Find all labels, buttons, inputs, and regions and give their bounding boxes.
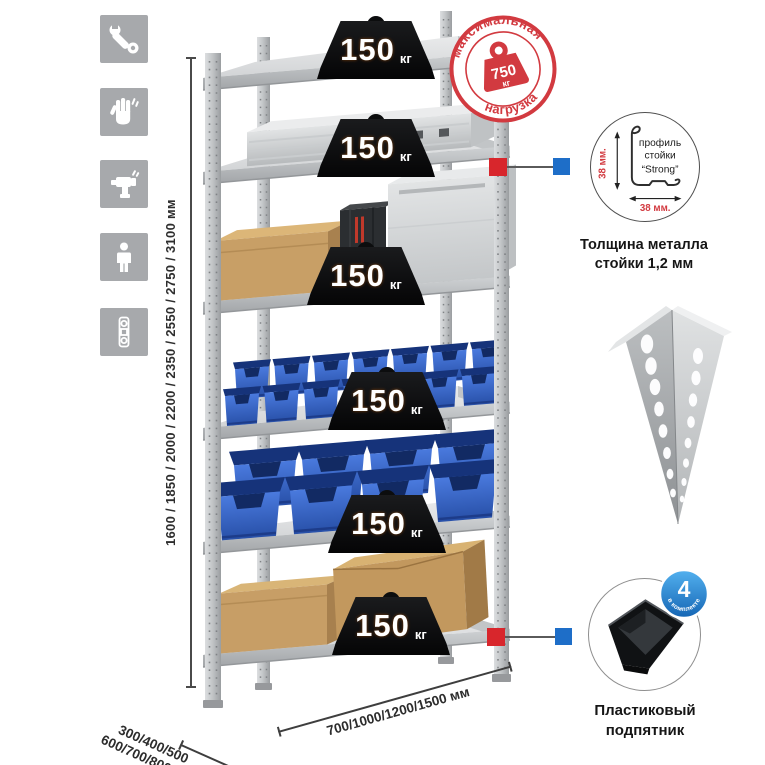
shelf-load-badge: 150кг (317, 114, 435, 177)
height-dimension-line (190, 57, 192, 688)
sidebar-icon-tile (100, 308, 148, 356)
sidebar-icon-tile (100, 88, 148, 136)
callout-blue-marker (555, 628, 572, 645)
person-icon (107, 240, 141, 274)
callout-line-bottom (505, 636, 557, 638)
included-count-badge: 4 в комплекте (658, 568, 710, 620)
shelf-load-badge: 150кг (332, 592, 450, 655)
foot-caption: Пластиковый подпятник (560, 701, 730, 741)
product-infographic: 1600 / 1850 / 2000 / 2200 / 2350 / 2550 … (0, 0, 765, 765)
shelf-load-badge: 150кг (328, 367, 446, 430)
callout-red-marker (489, 158, 507, 176)
callout-red-marker (487, 628, 505, 646)
shelf-load-badge: 150кг (307, 242, 425, 305)
profile-height-dim: 38 мм. (598, 148, 609, 179)
level-icon (107, 315, 141, 349)
post-profile-detail: 38 мм. 38 мм. профиль стойки “Strong” (590, 112, 700, 222)
callout-blue-marker (553, 158, 570, 175)
sidebar-icon-tile (100, 233, 148, 281)
max-load-stamp: максимальная нагрузка 750 кг (426, 0, 580, 143)
badge-count: 4 (678, 576, 691, 602)
drill-icon (107, 167, 141, 201)
sidebar-icon-tile (100, 15, 148, 63)
gloves-icon (107, 95, 141, 129)
profile-label: “Strong” (642, 164, 679, 175)
profile-label: профиль (639, 137, 681, 149)
wrench-icon (107, 22, 141, 56)
corner-profile-image (600, 298, 745, 530)
profile-caption: Толщина металла стойки 1,2 мм (559, 236, 729, 274)
shelf-load-badge: 150кг (328, 490, 446, 553)
shelf-load-badge: 150кг (317, 16, 435, 79)
profile-width-dim: 38 мм. (640, 203, 671, 214)
sidebar-icon-tile (100, 160, 148, 208)
height-dimension-label: 1600 / 1850 / 2000 / 2200 / 2350 / 2550 … (163, 57, 178, 688)
callout-line-top (507, 166, 555, 168)
profile-label: стойки (644, 151, 675, 162)
